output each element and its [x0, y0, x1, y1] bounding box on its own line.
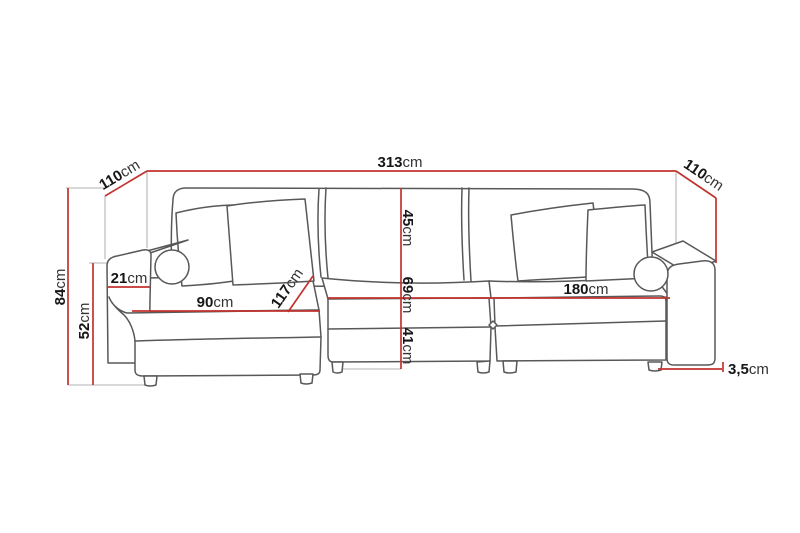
sofa-dimension-diagram: 313cm 110cm 110cm 84cm 52cm 21cm 90cm 11… [0, 0, 800, 533]
leg-middle-right [477, 361, 490, 373]
leg-middle-left [332, 362, 343, 373]
leg-chaise-left [144, 376, 157, 386]
dim-label-chaise-width: 90cm [197, 294, 234, 311]
dim-label-backrest-height: 45cm [399, 210, 416, 247]
diagram-canvas: 313cm 110cm 110cm 84cm 52cm 21cm 90cm 11… [0, 0, 800, 533]
dim-label-seat-width: 180cm [563, 281, 608, 298]
dim-label-leg-height: 3,5cm [728, 361, 769, 378]
armrest-right-front [667, 261, 715, 365]
right-front [494, 296, 666, 361]
dim-label-armrest-width: 21cm [111, 270, 148, 287]
dim-label-total-width: 313cm [377, 154, 422, 171]
dim-label-seat-height: 41cm [399, 328, 416, 365]
dim-label-seat-depth: 69cm [399, 277, 416, 314]
leg-right-left [503, 361, 517, 373]
dim-label-armrest-height: 52cm [76, 303, 93, 340]
leg-chaise-right [300, 374, 313, 384]
bolster-left [155, 250, 189, 284]
dim-label-total-height: 84cm [52, 269, 69, 306]
bolster-right [634, 257, 668, 291]
